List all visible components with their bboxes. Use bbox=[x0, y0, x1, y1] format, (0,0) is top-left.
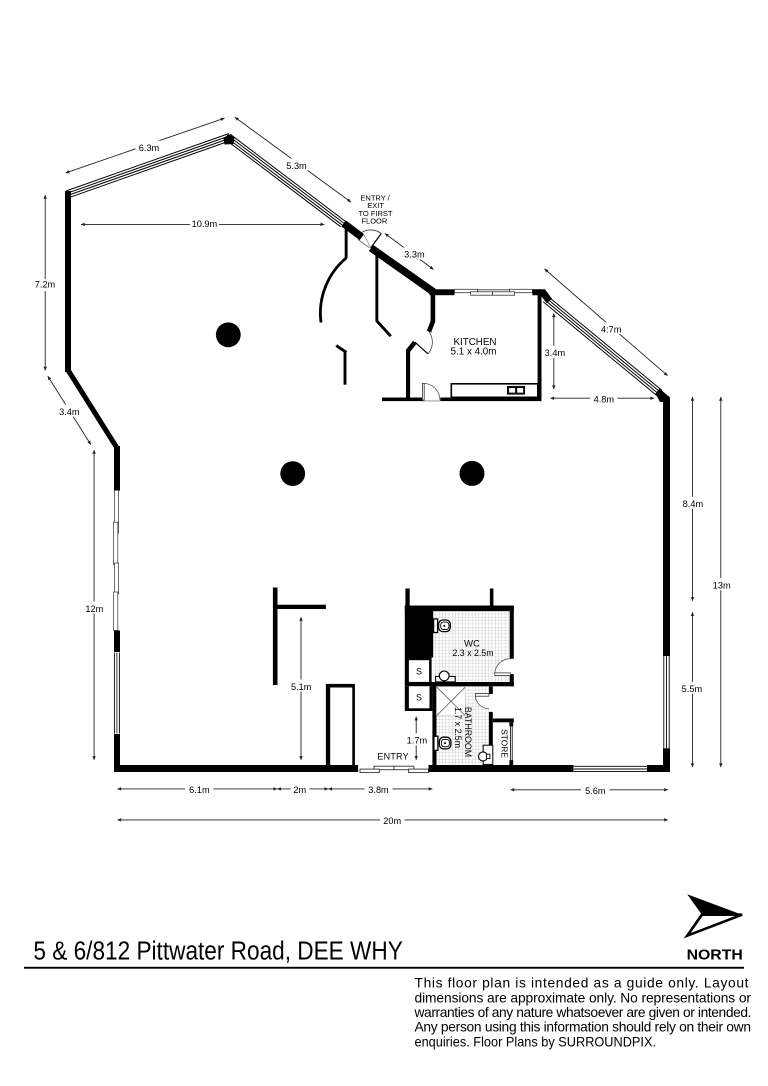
svg-text:20m: 20m bbox=[383, 816, 401, 826]
svg-text:2.3 x 2.5m: 2.3 x 2.5m bbox=[452, 648, 493, 658]
svg-text:enquiries. Floor Plans by SUR: enquiries. Floor Plans by SURROUNDPIX. bbox=[415, 1034, 657, 1049]
svg-text:FLOOR: FLOOR bbox=[361, 216, 387, 225]
svg-text:3.3m: 3.3m bbox=[404, 250, 425, 260]
svg-text:warranties of any nature whats: warranties of any nature whatsoever are … bbox=[414, 1005, 752, 1020]
svg-text:5.5m: 5.5m bbox=[682, 684, 703, 694]
svg-text:NORTH: NORTH bbox=[687, 946, 743, 963]
svg-text:5.1m: 5.1m bbox=[291, 682, 312, 692]
svg-text:5.6m: 5.6m bbox=[585, 786, 606, 796]
svg-text:1.7m: 1.7m bbox=[407, 736, 428, 746]
svg-text:8.4m: 8.4m bbox=[683, 499, 704, 509]
svg-text:This floor plan is intended as: This floor plan is intended as a guide o… bbox=[415, 976, 749, 991]
svg-text:7.2m: 7.2m bbox=[35, 280, 56, 290]
svg-text:5.3m: 5.3m bbox=[286, 161, 307, 171]
svg-text:STORE: STORE bbox=[500, 729, 510, 758]
svg-text:dimensions are approximate onl: dimensions are approximate only. No repr… bbox=[415, 990, 752, 1005]
svg-text:2m: 2m bbox=[293, 785, 306, 795]
svg-text:S: S bbox=[416, 693, 422, 703]
svg-text:1.7 x 2.5m: 1.7 x 2.5m bbox=[453, 707, 463, 748]
svg-text:6.1m: 6.1m bbox=[189, 785, 210, 795]
svg-text:3.8m: 3.8m bbox=[368, 785, 389, 795]
svg-text:3.4m: 3.4m bbox=[545, 348, 566, 358]
svg-text:4.8m: 4.8m bbox=[594, 395, 615, 405]
svg-text:Any person using this informat: Any person using this information should… bbox=[415, 1020, 752, 1035]
svg-text:3.4m: 3.4m bbox=[59, 407, 80, 417]
svg-text:12m: 12m bbox=[85, 604, 103, 614]
svg-text:BATHROOM: BATHROOM bbox=[463, 707, 473, 757]
svg-text:6.3m: 6.3m bbox=[139, 143, 160, 153]
svg-text:5 & 6/812 Pittwater Road, DEE: 5 & 6/812 Pittwater Road, DEE WHY bbox=[33, 937, 402, 965]
svg-text:S: S bbox=[416, 667, 422, 677]
svg-text:5.1 x 4.0m: 5.1 x 4.0m bbox=[451, 347, 497, 358]
svg-text:10.9m: 10.9m bbox=[192, 219, 218, 229]
svg-text:4:7m: 4:7m bbox=[601, 324, 622, 334]
svg-text:13m: 13m bbox=[713, 580, 731, 590]
svg-text:ENTRY: ENTRY bbox=[377, 752, 408, 762]
